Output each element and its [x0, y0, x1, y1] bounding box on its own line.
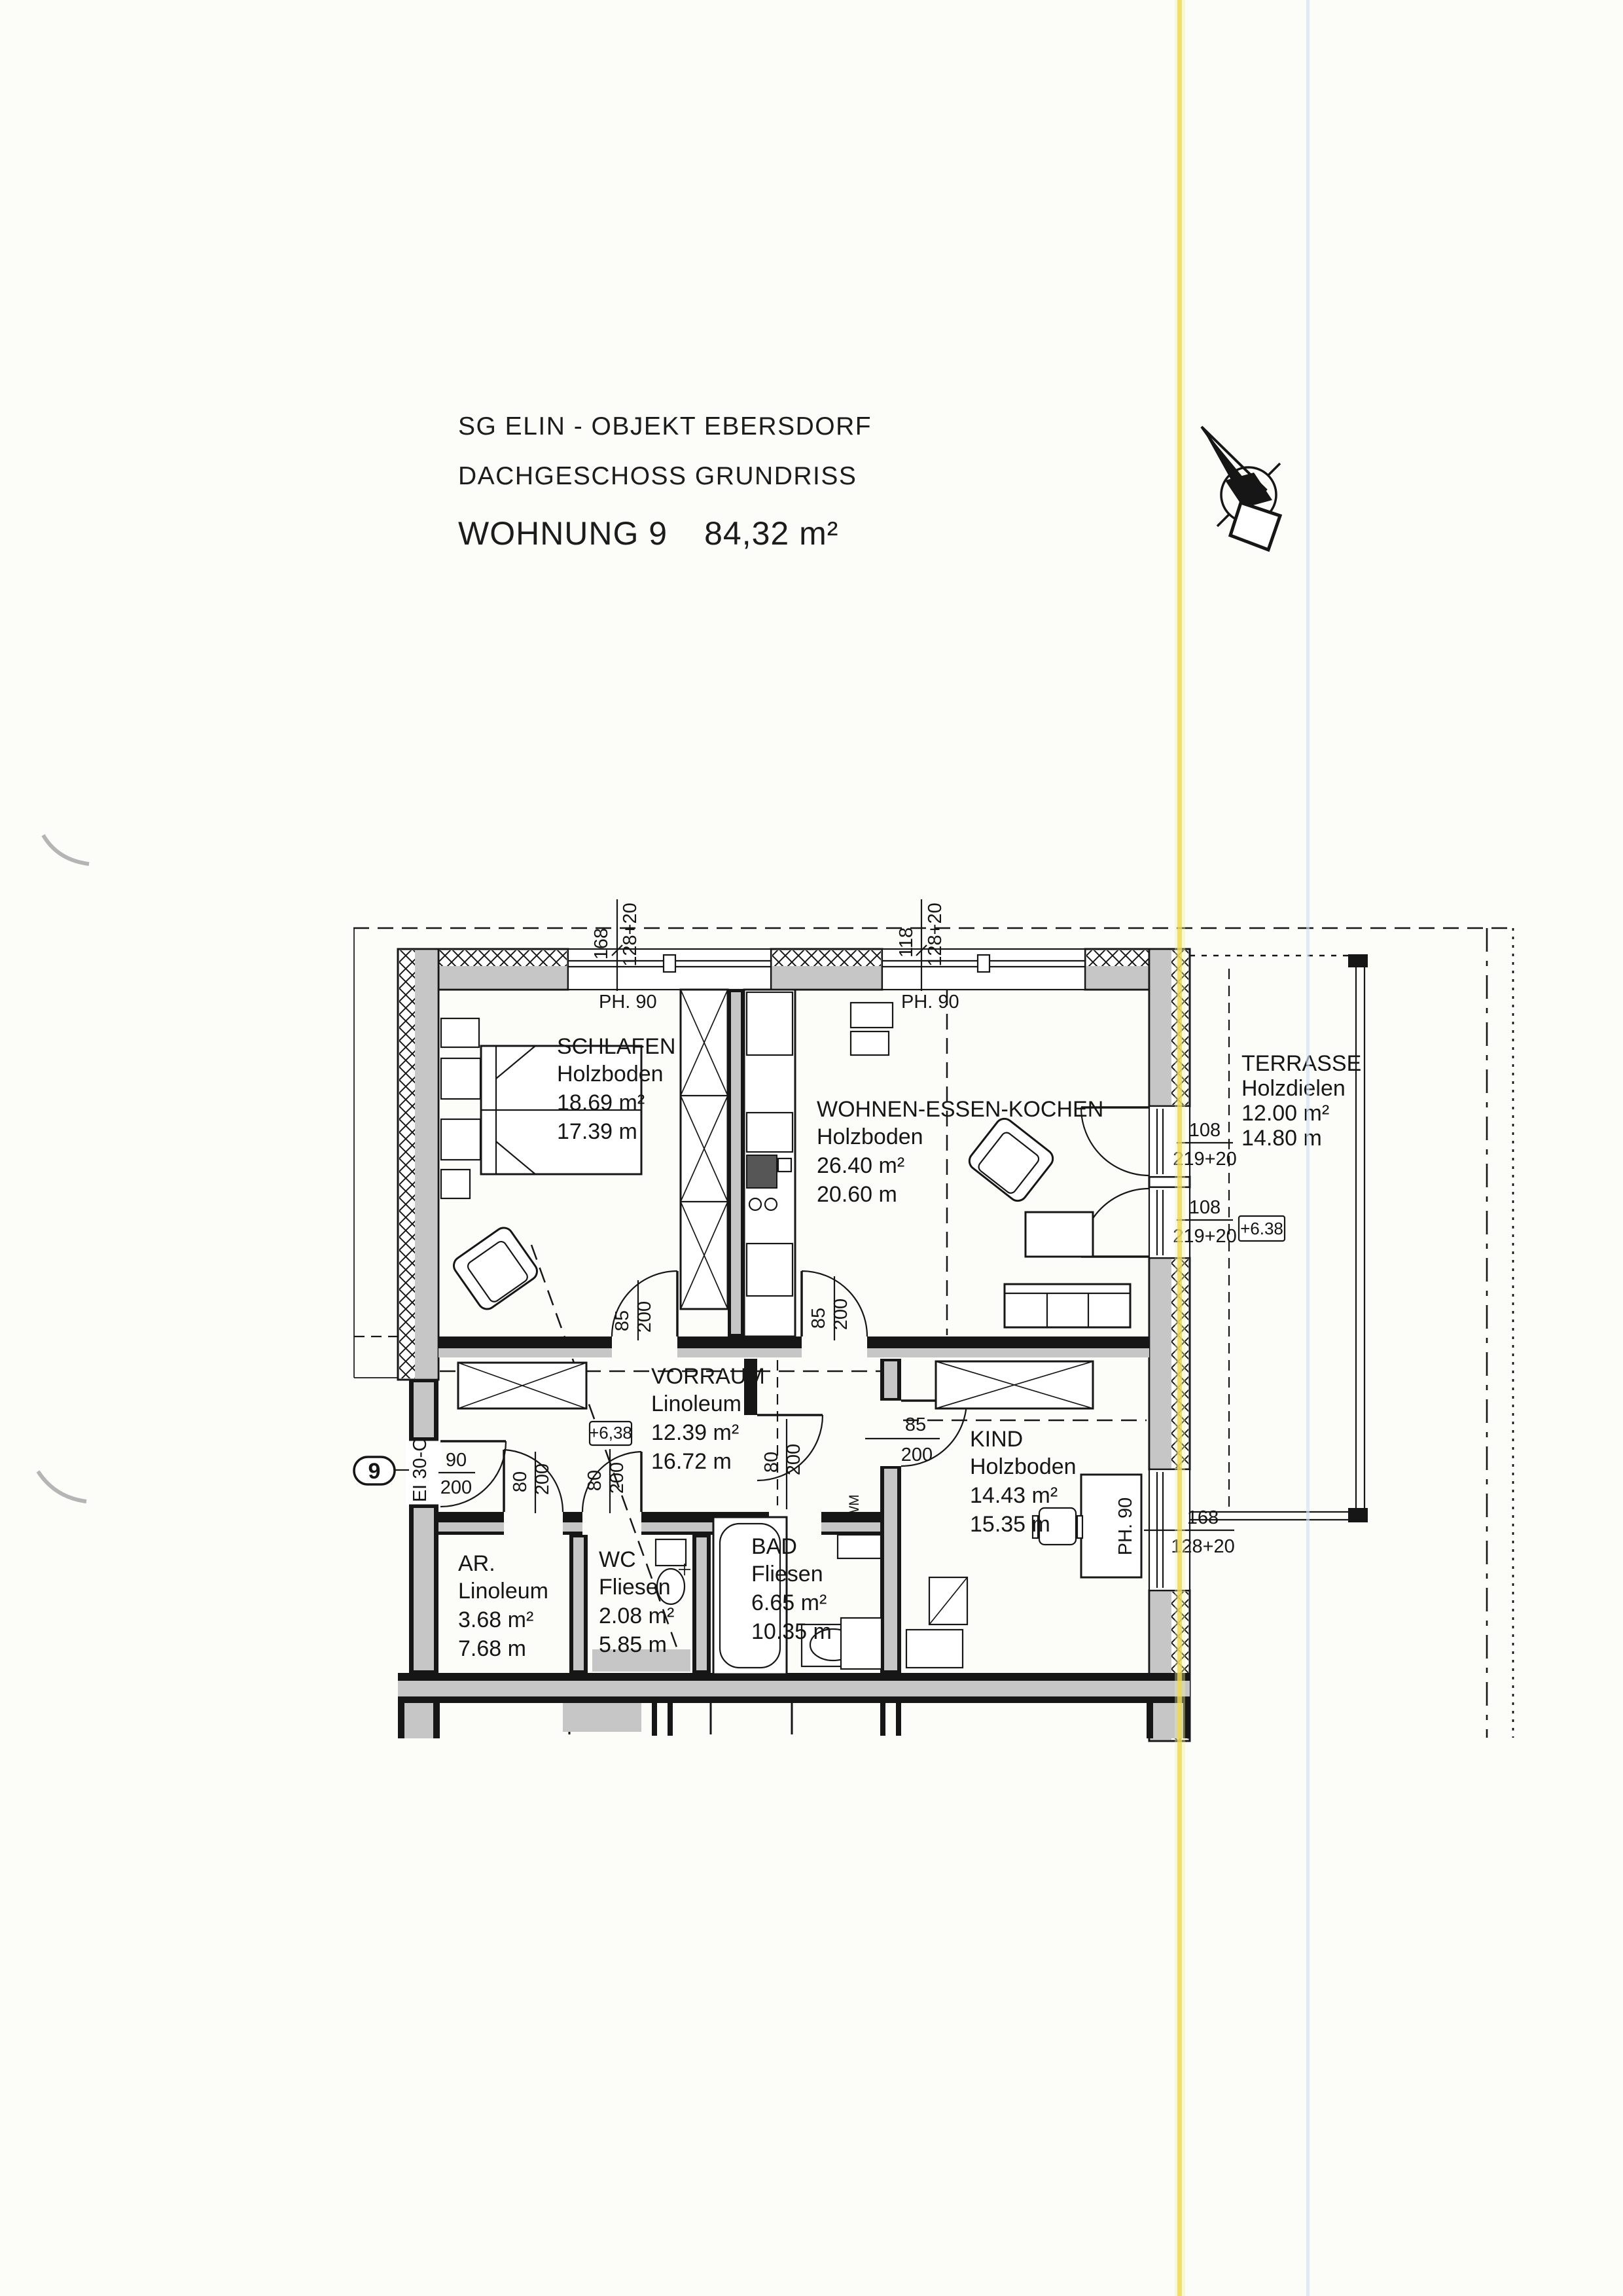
room-area-bad: 6.65 m² — [751, 1590, 827, 1615]
room-name-wc: WC — [599, 1547, 636, 1572]
wardrobe-kind — [936, 1361, 1093, 1408]
dim-door-entry-h: 200 — [440, 1477, 472, 1498]
armchair-schlafen — [450, 1224, 541, 1312]
dim-door-entry-w: 90 — [446, 1450, 467, 1471]
dim-window-kind-w: 168 — [1187, 1507, 1219, 1528]
room-name-kind: KIND — [970, 1427, 1023, 1452]
level-marker-vorraum: +6,38 — [589, 1422, 632, 1445]
dim-terracedoor2-w: 108 — [1189, 1197, 1221, 1218]
room-floor-ar: Linoleum — [458, 1579, 548, 1604]
fire-rating-label: EI 30-C — [410, 1438, 431, 1502]
terrace-door-lower — [1081, 1187, 1190, 1258]
punch-hole-mark — [43, 835, 89, 864]
room-perimeter-wohnen: 20.60 m — [817, 1182, 897, 1207]
room-area-schlafen: 18.69 m² — [557, 1090, 645, 1115]
parapet-topright: PH. 90 — [901, 992, 959, 1013]
washing-machine — [838, 1535, 882, 1669]
room-area-ar: 3.68 m² — [458, 1607, 533, 1632]
unit-number-badge: 9 — [354, 1457, 395, 1484]
room-perimeter-ar: 7.68 m — [458, 1636, 526, 1661]
washing-machine-label: WM — [847, 1494, 862, 1518]
room-floor-kind: Holzboden — [970, 1454, 1077, 1479]
room-name-bad: BAD — [751, 1534, 797, 1559]
dim-door-wc-h: 200 — [607, 1462, 628, 1494]
room-perimeter-schlafen: 17.39 m — [557, 1119, 637, 1144]
room-area-kind: 14.43 m² — [970, 1483, 1058, 1508]
room-area-vorraum: 12.39 m² — [651, 1420, 739, 1445]
dim-door-schlafen-h: 200 — [634, 1301, 655, 1333]
wardrobe-schlafen — [681, 990, 728, 1309]
dimension-lines — [393, 899, 1234, 1530]
room-perimeter-wc: 5.85 m — [599, 1632, 667, 1657]
dim-door-schlafen-w: 85 — [612, 1310, 633, 1331]
room-area-wohnen: 26.40 m² — [817, 1153, 904, 1178]
scan-artifacts — [38, 0, 1310, 2296]
room-floor-bad: Fliesen — [751, 1562, 823, 1587]
dresser-kind — [906, 1577, 967, 1668]
dim-door-kind-h: 200 — [901, 1444, 933, 1465]
room-floor-terrasse: Holzdielen — [1241, 1076, 1346, 1101]
room-area-wc: 2.08 m² — [599, 1604, 674, 1628]
dim-door-kind-w: 85 — [905, 1414, 926, 1435]
floor-plan-drawing: SCHLAFEN Holzboden 18.69 m² 17.39 m WOHN… — [0, 0, 1623, 2296]
scanner-yellow-streak — [1177, 0, 1182, 2296]
dining-table — [1026, 1212, 1093, 1257]
parapet-topleft: PH. 90 — [599, 992, 657, 1013]
nightstands — [441, 1018, 480, 1198]
wardrobe-vorraum — [458, 1363, 586, 1408]
room-floor-vorraum: Linoleum — [651, 1391, 741, 1416]
dim-door-hall-w: 80 — [761, 1452, 782, 1473]
svg-text:+6,38: +6,38 — [589, 1423, 632, 1443]
scanner-blue-streak — [1306, 0, 1310, 2296]
dim-door-hall-h: 200 — [783, 1444, 804, 1475]
dim-door-wohnen-w: 85 — [808, 1308, 829, 1329]
dim-window-topright-w: 118 — [896, 927, 917, 958]
dim-terracedoor1-w: 108 — [1189, 1120, 1221, 1141]
room-name-terrasse: TERRASSE — [1241, 1051, 1361, 1076]
dim-window-topright-h: 128+20 — [925, 903, 946, 967]
shelf-wohnen — [851, 1003, 893, 1055]
punch-hole-mark — [38, 1471, 86, 1501]
room-perimeter-terrasse: 14.80 m — [1241, 1126, 1322, 1151]
room-perimeter-bad: 10.35 m — [751, 1619, 832, 1644]
room-perimeter-kind: 15.35 m — [970, 1512, 1050, 1537]
dim-window-topleft-h: 128+20 — [620, 903, 641, 967]
scanned-floor-plan-sheet: SG ELIN - OBJEKT EBERSDORF DACHGESCHOSS … — [0, 0, 1623, 2296]
dim-door-ar-w: 80 — [510, 1471, 531, 1492]
room-floor-wc: Fliesen — [599, 1575, 671, 1600]
room-name-wohnen: WOHNEN-ESSEN-KOCHEN — [817, 1097, 1103, 1122]
room-name-ar: AR. — [458, 1551, 495, 1576]
room-name-vorraum: VORRAUM — [651, 1364, 765, 1389]
room-floor-schlafen: Holzboden — [557, 1062, 664, 1086]
parapet-kind: PH. 90 — [1115, 1498, 1136, 1556]
dim-window-topleft-w: 168 — [591, 928, 612, 960]
level-marker-terrasse: +6.38 — [1239, 1216, 1285, 1241]
dim-door-wc-w: 80 — [584, 1470, 605, 1491]
room-floor-wohnen: Holzboden — [817, 1124, 923, 1149]
room-perimeter-vorraum: 16.72 m — [651, 1449, 732, 1474]
north-arrow-icon — [1202, 427, 1280, 550]
sofa — [1005, 1284, 1130, 1327]
armchair-wohnen — [966, 1115, 1057, 1205]
dim-door-wohnen-h: 200 — [830, 1299, 851, 1330]
room-area-terrasse: 12.00 m² — [1241, 1101, 1329, 1126]
room-name-schlafen: SCHLAFEN — [557, 1034, 675, 1059]
kitchen-unit — [744, 990, 795, 1336]
dim-door-ar-h: 200 — [532, 1463, 553, 1495]
svg-text:+6.38: +6.38 — [1240, 1219, 1283, 1238]
svg-text:9: 9 — [368, 1459, 381, 1484]
